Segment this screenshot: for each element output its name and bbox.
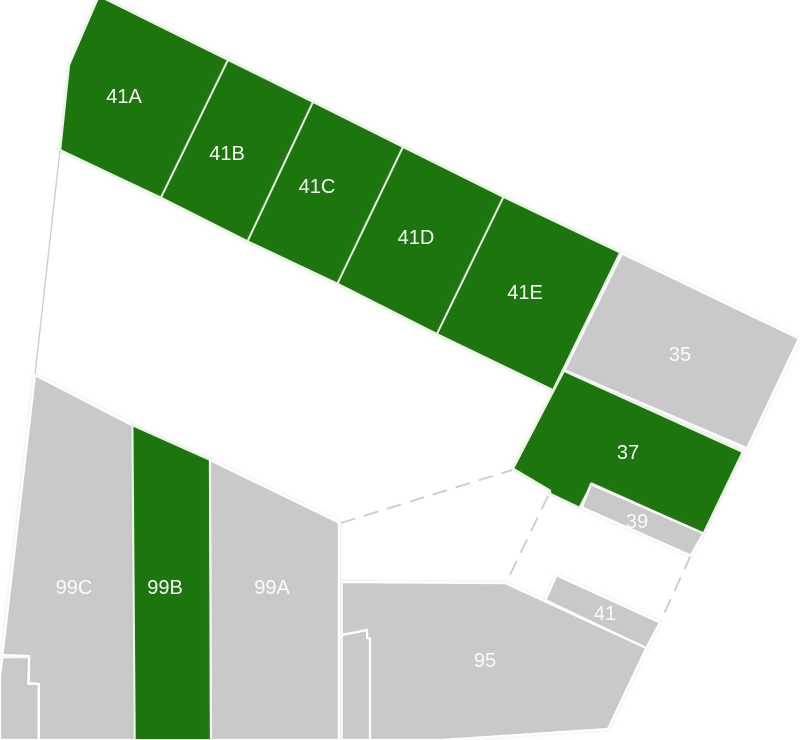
svg-text:41B: 41B: [209, 143, 245, 165]
svg-text:99B: 99B: [147, 577, 183, 599]
svg-text:35: 35: [669, 344, 691, 366]
svg-text:41: 41: [594, 603, 616, 625]
svg-text:39: 39: [626, 511, 648, 533]
svg-text:41A: 41A: [106, 86, 142, 108]
svg-text:41E: 41E: [507, 282, 543, 304]
svg-text:99C: 99C: [56, 577, 93, 599]
svg-text:37: 37: [617, 442, 639, 464]
svg-text:41D: 41D: [398, 227, 435, 249]
svg-text:99A: 99A: [254, 577, 290, 599]
svg-text:41C: 41C: [299, 176, 336, 198]
svg-text:95: 95: [474, 650, 496, 672]
